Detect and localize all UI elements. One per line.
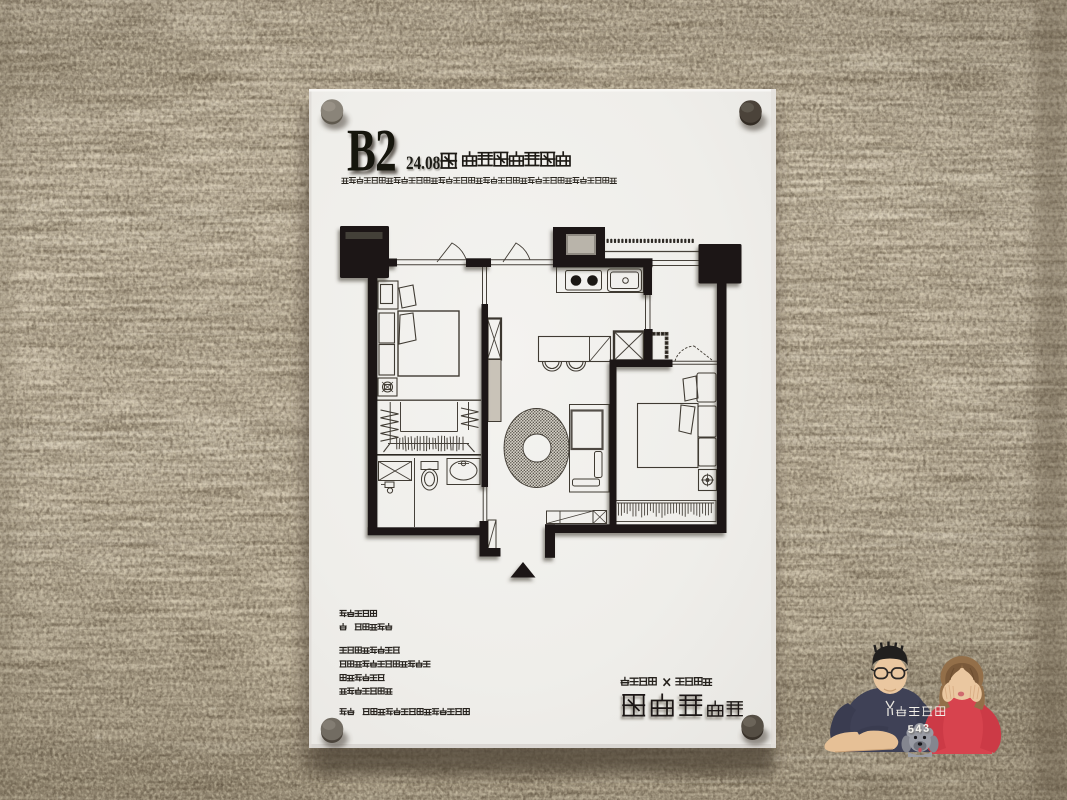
- svg-text:543: 543: [907, 722, 931, 736]
- svg-text:B2: B2: [347, 118, 396, 185]
- svg-text:24.08: 24.08: [406, 152, 441, 173]
